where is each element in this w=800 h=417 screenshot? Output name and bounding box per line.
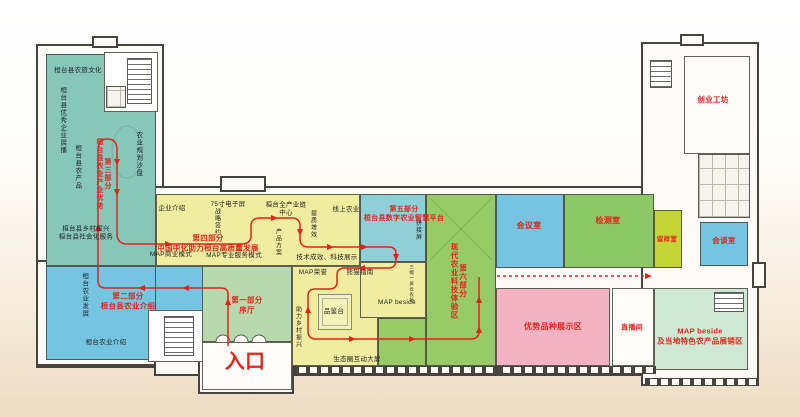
zone-experience-green-ext — [378, 318, 426, 366]
label-testing-room: 检测室 — [596, 216, 621, 226]
label-eco-screen: 生态圈互动大屏 — [333, 356, 381, 364]
east-door-bump — [752, 262, 766, 288]
label-live-room: 直播间 — [621, 323, 643, 332]
left-roof-bump — [92, 36, 118, 48]
south-wall-windows-left — [294, 366, 498, 374]
label-map-honor: MAP荣誉 — [299, 269, 328, 277]
floor-plan: 桓台县农旅文化桓台县优秀企业展播桓台县农产品农业规划沙盘桓台县乡村振兴 桓台县社… — [0, 0, 800, 417]
zone-startup-room — [684, 56, 750, 154]
label-industry-chain: 桓台全产业链 中心 — [266, 202, 307, 219]
label-part3: 第三部分 桓台县农业产业优势 — [95, 138, 111, 210]
label-excellent-enterprise: 桓台县优秀企业展播 — [58, 86, 65, 154]
label-meeting-room: 会议室 — [517, 221, 542, 231]
label-entrance: 入口 — [225, 349, 266, 375]
label-online-agri: 线上农业 — [332, 206, 359, 214]
label-map-professional: MAP专业服务模式 — [206, 252, 262, 260]
label-talk-room: 会谈室 — [712, 236, 735, 246]
label-strategic-signing: 战略签约 — [213, 208, 220, 236]
label-culture: 桓台县农旅文化 — [54, 67, 102, 75]
label-rural-help: 助力乡村振兴 — [294, 306, 301, 348]
zone-testing-room — [564, 194, 654, 268]
stairs-map-shop — [714, 292, 744, 312]
label-product-plan: 产品方案 — [274, 228, 281, 256]
label-panda-guide: 熊猫指南 — [346, 269, 373, 277]
stairs-bottom-left — [164, 316, 194, 356]
label-enterprise-intro: 企业介绍 — [158, 205, 185, 213]
north-door-bump — [220, 176, 266, 192]
label-map-shop: MAP beside 及当地特色农产品展销区 — [657, 326, 743, 346]
right-roof-bump — [680, 34, 704, 46]
label-sand-table: 农业规划沙盘 — [134, 132, 141, 177]
label-agri-product: 桓台县农产品 — [73, 145, 80, 190]
label-sample-room: 留样室 — [657, 236, 677, 244]
label-mini-note: 三端一屏云农场 — [409, 265, 414, 304]
south-wall-right-wing — [645, 378, 757, 386]
label-agri-develop: 桓台农业发展 — [80, 273, 87, 318]
south-wall-windows-right — [498, 366, 656, 374]
label-agri-intro: 桓台农业介绍 — [86, 339, 127, 347]
label-part5: 第五部分 桓台县数字农业智慧平台 — [364, 205, 444, 223]
label-variety-zone: 优势品种展示区 — [524, 322, 582, 332]
label-part2: 第二部分 桓台县农业介绍 — [101, 291, 156, 311]
label-tech-achievement: 技术成效、科技展示 — [296, 254, 357, 262]
stairs-right-wing-top — [650, 60, 672, 88]
label-tasting-table: 品鉴台 — [324, 308, 344, 316]
label-map-business: MAP商业模式 — [150, 251, 192, 259]
label-startup-workshop: 创业工坊 — [697, 95, 728, 105]
label-quality: 提质增效 — [309, 210, 316, 238]
label-part1: 第一部分 序厅 — [231, 295, 262, 315]
zone-agri-intro-blue-ext — [155, 266, 204, 312]
wc-top-left — [106, 86, 126, 108]
label-splice-screen: 拼接屏 — [414, 220, 421, 241]
wc-right-wing — [698, 154, 750, 218]
stairs-top-left — [127, 58, 152, 104]
label-rural-service: 桓台县乡村振兴 桓台县社会化服务 — [59, 226, 113, 243]
label-part6: 第六部分 现代农业科技体验区 — [449, 243, 466, 320]
